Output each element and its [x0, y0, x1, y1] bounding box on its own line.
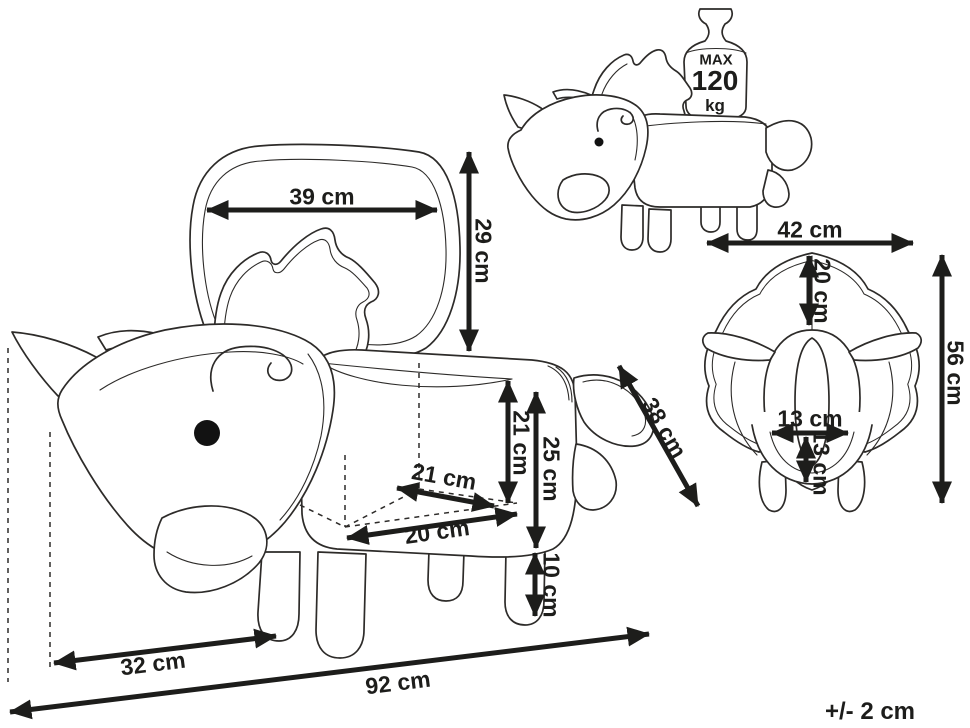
dim-label-leg-height: 10 cm — [538, 552, 565, 617]
dimension-diagram: 39 cm 29 cm 21 cm 25 cm 10 cm 21 cm 20 c… — [0, 0, 970, 728]
side-view-closed-drawing — [504, 9, 812, 252]
small-eye — [595, 138, 604, 147]
dim-label-seat-height: 25 cm — [538, 436, 565, 501]
beak — [154, 506, 267, 593]
dim-label-lid-width: 39 cm — [289, 184, 354, 211]
dim-label-front-width: 42 cm — [777, 217, 842, 244]
eye — [194, 420, 220, 446]
small-body — [630, 114, 772, 207]
dim-label-mouth-width: 13 cm — [777, 406, 842, 433]
dim-label-lid-height: 29 cm — [470, 218, 497, 283]
dim-label-front-total-height: 56 cm — [942, 340, 969, 405]
weight-limit-value: 120 — [692, 65, 739, 97]
diagram-canvas — [0, 0, 970, 728]
legs — [258, 550, 545, 658]
tolerance-note: +/- 2 cm — [825, 698, 915, 726]
tail-fins — [573, 375, 654, 510]
dim-label-mouth-height: 13 cm — [808, 430, 835, 495]
weight-limit-unit: kg — [705, 96, 725, 116]
dim-label-front-frill-height: 20 cm — [809, 258, 836, 323]
dim-label-inner-height: 21 cm — [508, 410, 535, 475]
